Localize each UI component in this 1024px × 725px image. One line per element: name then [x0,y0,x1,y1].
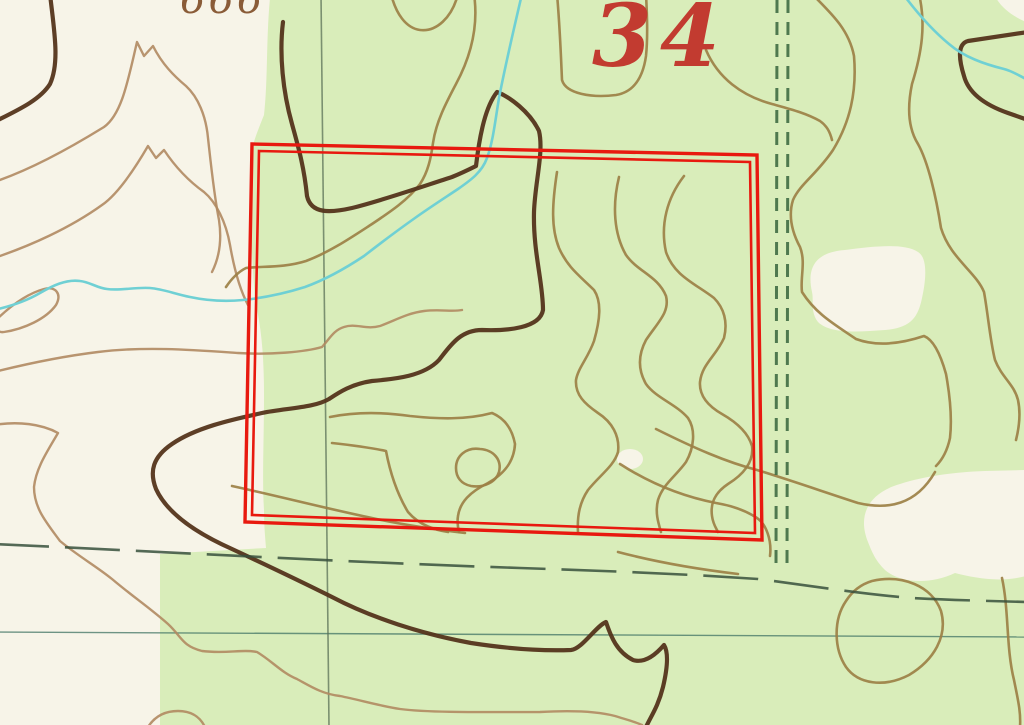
section-number-label: 34 [592,0,728,87]
vegetation-layer [0,0,1024,725]
elevation-label: 666 [180,0,265,23]
topo-map-canvas[interactable]: 34 666 [0,0,1024,725]
topo-map-viewport[interactable]: 34 666 [0,0,1024,725]
